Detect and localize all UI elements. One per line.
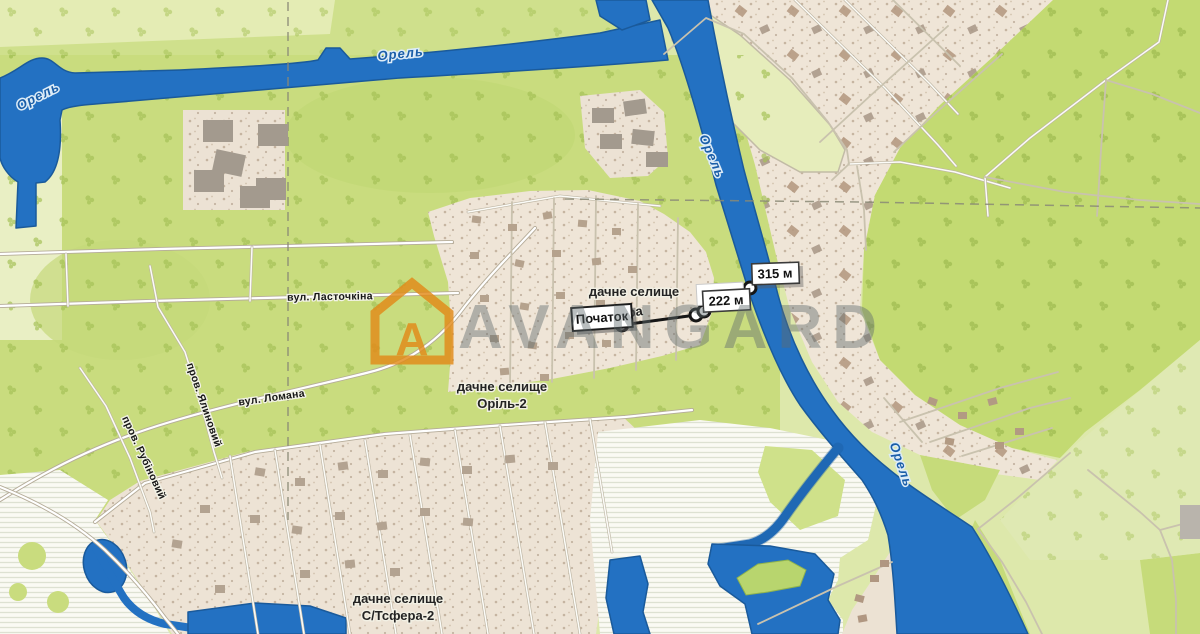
building: [500, 368, 510, 376]
building: [600, 134, 622, 149]
building: [194, 170, 224, 192]
building: [203, 120, 233, 142]
settlement-label-oril2-line2: Оріль-2: [477, 396, 526, 411]
building: [254, 467, 265, 477]
building: [646, 152, 668, 167]
building: [1180, 505, 1200, 539]
building: [995, 442, 1004, 449]
building: [215, 585, 225, 593]
settlement-label-stsfera2-line2: С/Тсфера-2: [362, 608, 435, 623]
building: [420, 457, 431, 466]
measurement-d2-label: 315 м: [757, 265, 792, 281]
building: [505, 455, 516, 464]
building: [578, 220, 588, 228]
building: [463, 518, 474, 527]
building: [258, 124, 288, 146]
building: [335, 512, 345, 520]
building: [508, 224, 517, 231]
building: [592, 258, 602, 266]
building: [377, 521, 388, 530]
building: [337, 461, 348, 470]
pond-south: [606, 556, 650, 634]
building: [612, 228, 621, 235]
settlement-label-stsfera2-line1: дачне селище: [353, 591, 443, 606]
building: [958, 412, 967, 419]
building: [870, 575, 879, 582]
building: [1015, 428, 1024, 435]
building: [200, 505, 210, 513]
building: [548, 462, 558, 470]
building: [240, 186, 270, 208]
map-viewport[interactable]: вул. Ласточкіна вул. Ломана пров. Ялинов…: [0, 0, 1200, 634]
building: [295, 478, 305, 486]
building: [171, 539, 182, 548]
building: [291, 525, 302, 534]
building: [390, 568, 400, 576]
building: [470, 252, 479, 259]
building: [345, 559, 356, 568]
building: [472, 215, 482, 223]
map-canvas[interactable]: вул. Ласточкіна вул. Ломана пров. Ялинов…: [0, 0, 1200, 634]
settlement-label-oril2-line1: дачне селище: [457, 379, 547, 394]
street-label-lastochkina: вул. Ласточкіна: [287, 290, 373, 303]
building: [592, 108, 614, 123]
building: [552, 250, 561, 257]
building: [250, 515, 260, 523]
building: [623, 99, 647, 117]
building: [300, 570, 310, 578]
building: [462, 466, 472, 474]
building: [420, 508, 430, 516]
building: [880, 560, 889, 567]
watermark-logo-letter: A: [395, 313, 428, 365]
measurement-label-315m: 315 м: [752, 262, 804, 289]
building: [378, 470, 388, 478]
building: [631, 129, 654, 146]
building: [628, 266, 637, 273]
watermark-text: AVANGARD: [458, 293, 887, 362]
